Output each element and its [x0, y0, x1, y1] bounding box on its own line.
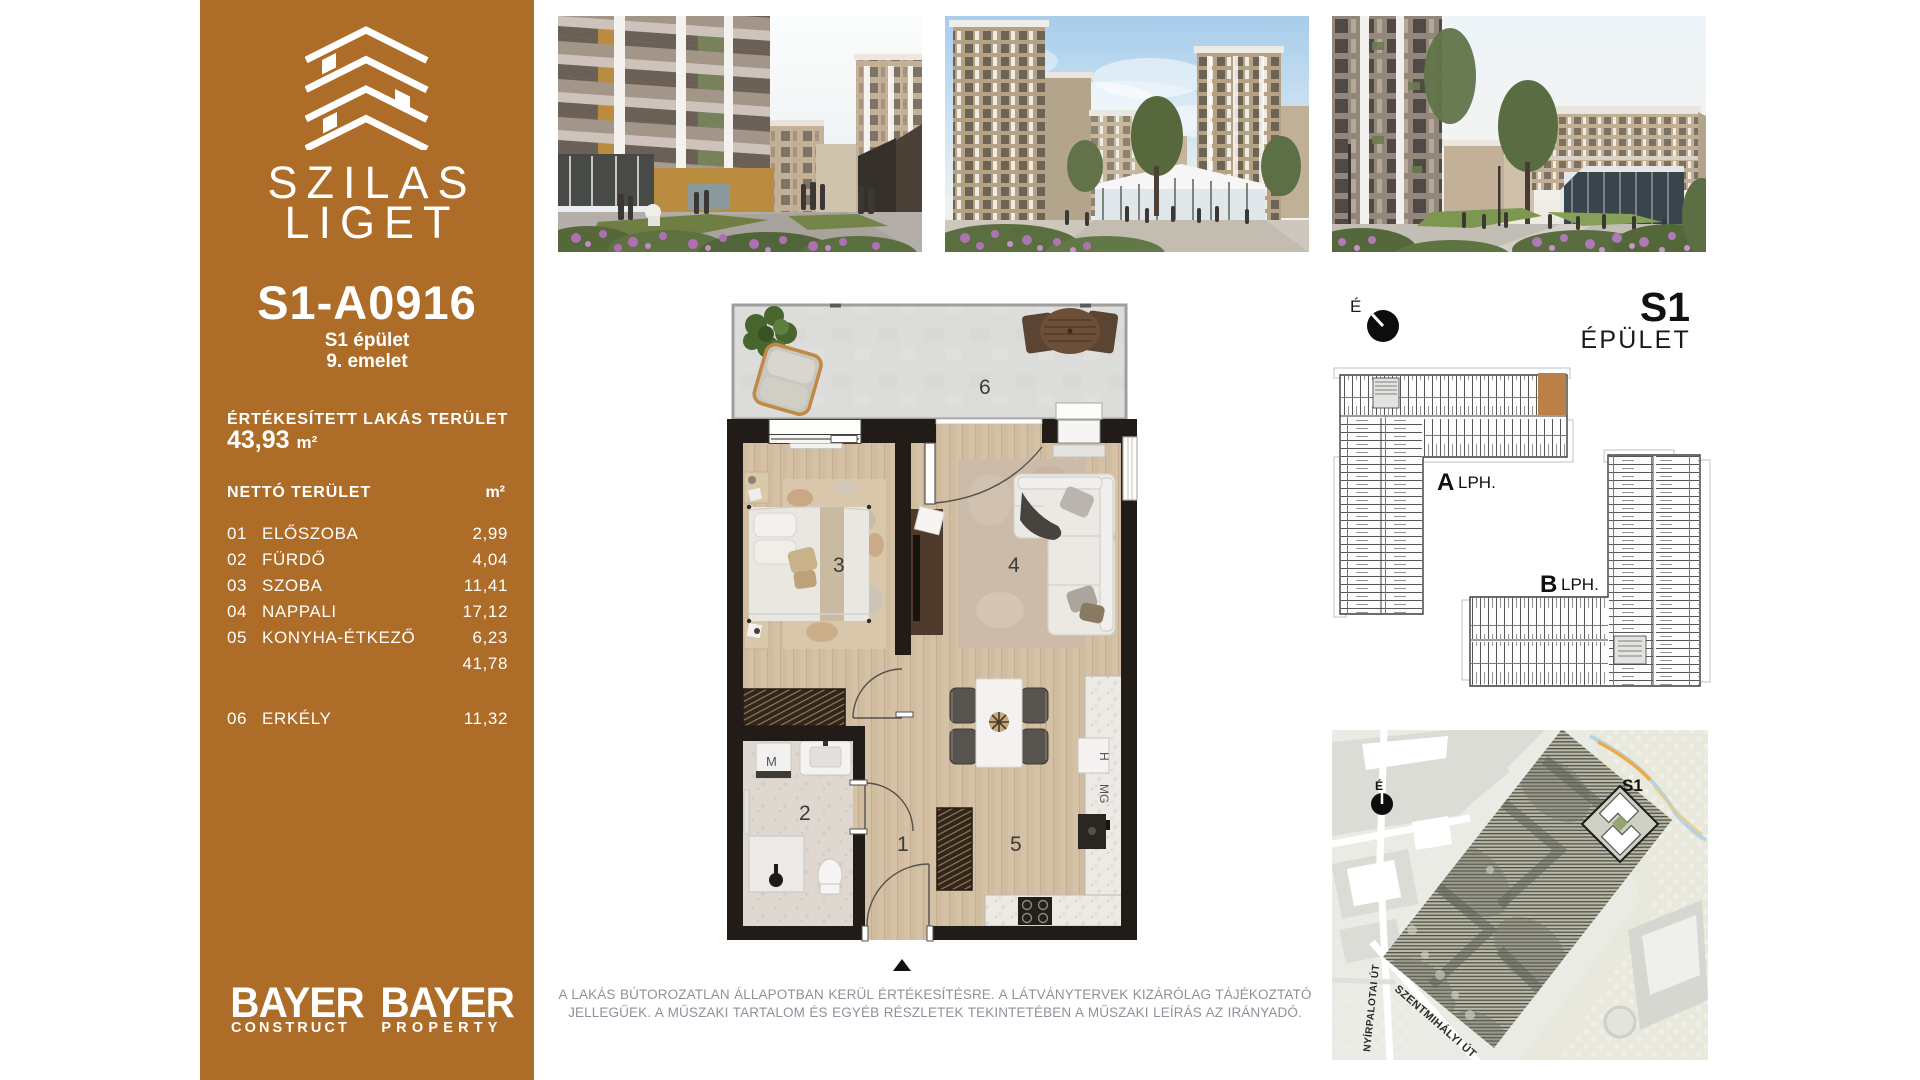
svg-text:S1: S1: [1622, 776, 1643, 795]
svg-text:B: B: [1540, 571, 1557, 598]
svg-text:MG: MG: [1097, 784, 1111, 803]
svg-text:S1: S1: [1640, 285, 1690, 330]
svg-text:4: 4: [1008, 554, 1020, 577]
svg-text:3: 3: [833, 554, 845, 577]
svg-text:1: 1: [897, 833, 909, 856]
svg-text:A: A: [1437, 469, 1454, 496]
svg-text:6: 6: [979, 376, 991, 399]
svg-text:É: É: [1375, 778, 1383, 793]
svg-text:H: H: [1097, 752, 1111, 761]
svg-text:5: 5: [1010, 833, 1022, 856]
svg-text:2: 2: [799, 802, 811, 825]
svg-text:LPH.: LPH.: [1458, 473, 1496, 492]
svg-text:M: M: [766, 754, 777, 769]
svg-text:É: É: [1350, 297, 1361, 316]
svg-text:ÉPÜLET: ÉPÜLET: [1581, 325, 1691, 354]
svg-text:LPH.: LPH.: [1561, 575, 1599, 594]
